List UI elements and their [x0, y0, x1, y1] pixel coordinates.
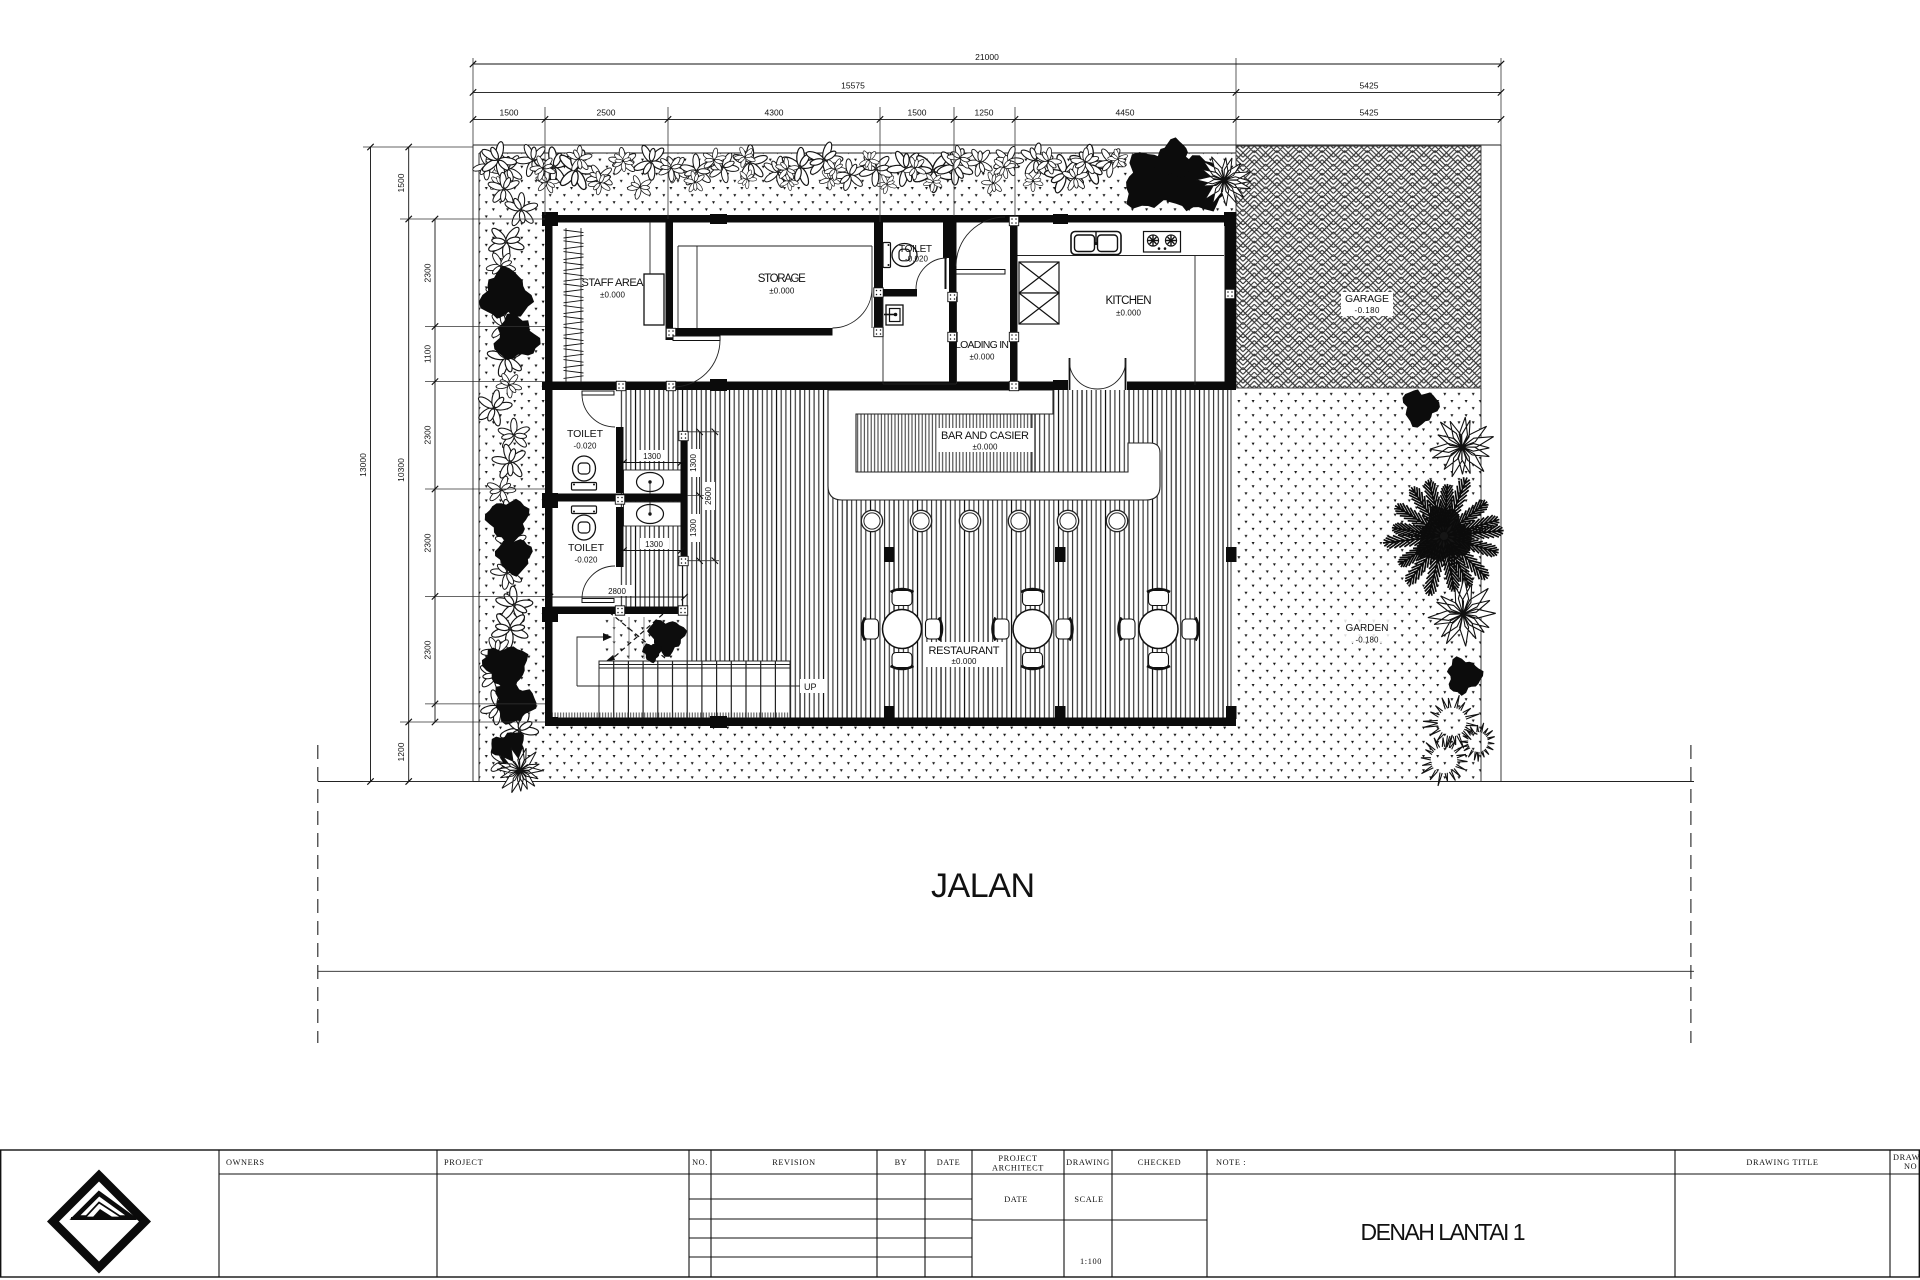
svg-text:1300: 1300 — [689, 519, 698, 537]
svg-text:2300: 2300 — [423, 263, 433, 282]
svg-text:2300: 2300 — [423, 533, 433, 552]
svg-text:DRAWING: DRAWING — [1893, 1153, 1920, 1162]
svg-text:REVISION: REVISION — [772, 1158, 816, 1167]
svg-text:5425: 5425 — [1360, 107, 1379, 117]
svg-text:TOILET: TOILET — [567, 428, 604, 440]
svg-text:-0.020: -0.020 — [574, 442, 598, 451]
svg-text:CHECKED: CHECKED — [1138, 1158, 1181, 1167]
svg-text:PROJECT: PROJECT — [998, 1154, 1037, 1163]
svg-text:STORAGE: STORAGE — [758, 273, 806, 285]
svg-text:ARCHITECT: ARCHITECT — [992, 1164, 1044, 1173]
svg-text:OWNERS: OWNERS — [226, 1158, 265, 1167]
svg-text:-0.020: -0.020 — [575, 556, 599, 565]
svg-text:21000: 21000 — [975, 52, 999, 62]
svg-text:±0.000: ±0.000 — [1116, 309, 1142, 318]
svg-text:2600: 2600 — [704, 487, 713, 505]
svg-text:DRAWING: DRAWING — [1066, 1158, 1110, 1167]
svg-text:BAR AND CASIER: BAR AND CASIER — [941, 430, 1029, 442]
svg-text:13000: 13000 — [358, 453, 368, 477]
svg-text:SCALE: SCALE — [1074, 1195, 1103, 1204]
svg-text:-0.180: -0.180 — [1355, 306, 1381, 315]
svg-text:1300: 1300 — [689, 454, 698, 472]
svg-text:DENAH LANTAI 1: DENAH LANTAI 1 — [1361, 1219, 1526, 1245]
svg-text:1500: 1500 — [396, 173, 406, 192]
svg-text:DRAWING TITLE: DRAWING TITLE — [1746, 1158, 1818, 1167]
svg-text:TOILET: TOILET — [568, 542, 605, 554]
svg-text:KITCHEN: KITCHEN — [1106, 295, 1152, 307]
svg-text:±0.000: ±0.000 — [973, 443, 999, 452]
svg-text:2300: 2300 — [423, 425, 433, 444]
svg-text:1500: 1500 — [500, 107, 519, 117]
svg-text:1300: 1300 — [645, 540, 663, 549]
svg-text:DATE: DATE — [1004, 1195, 1028, 1204]
svg-text:DATE: DATE — [937, 1158, 961, 1167]
svg-text:NO :: NO : — [1904, 1162, 1920, 1171]
svg-text:NOTE :: NOTE : — [1216, 1158, 1246, 1167]
svg-text:JALAN: JALAN — [931, 867, 1035, 905]
svg-text:-0.180: -0.180 — [1356, 636, 1380, 645]
svg-text:1:100: 1:100 — [1080, 1257, 1102, 1266]
svg-text:RESTAURANT: RESTAURANT — [929, 645, 1000, 657]
svg-text:BY: BY — [895, 1158, 908, 1167]
svg-text:-0.020: -0.020 — [905, 255, 929, 264]
svg-text:±0.000: ±0.000 — [769, 287, 795, 296]
svg-text:±0.000: ±0.000 — [970, 353, 996, 362]
svg-text:PROJECT: PROJECT — [444, 1158, 483, 1167]
svg-text:±0.000: ±0.000 — [600, 291, 626, 300]
svg-text:1100: 1100 — [423, 345, 433, 364]
svg-text:1500: 1500 — [908, 107, 927, 117]
svg-text:1200: 1200 — [396, 742, 406, 761]
svg-text:10300: 10300 — [396, 458, 406, 482]
svg-text:±0.000: ±0.000 — [952, 657, 978, 666]
svg-text:NO.: NO. — [692, 1158, 708, 1167]
svg-text:2300: 2300 — [423, 640, 433, 659]
svg-text:2800: 2800 — [608, 587, 626, 596]
svg-text:1300: 1300 — [643, 452, 661, 461]
svg-text:STAFF AREA: STAFF AREA — [582, 277, 645, 289]
svg-text:1250: 1250 — [975, 107, 994, 117]
svg-text:4450: 4450 — [1116, 107, 1135, 117]
svg-text:GARDEN: GARDEN — [1346, 623, 1389, 634]
svg-text:GARAGE: GARAGE — [1345, 293, 1389, 305]
svg-text:15575: 15575 — [841, 80, 865, 90]
svg-text:4300: 4300 — [765, 107, 784, 117]
svg-text:5425: 5425 — [1360, 80, 1379, 90]
svg-text:2500: 2500 — [597, 107, 616, 117]
svg-text:TOILET: TOILET — [899, 244, 932, 255]
svg-text:UP: UP — [804, 682, 817, 692]
svg-text:LOADING IN: LOADING IN — [955, 339, 1009, 351]
